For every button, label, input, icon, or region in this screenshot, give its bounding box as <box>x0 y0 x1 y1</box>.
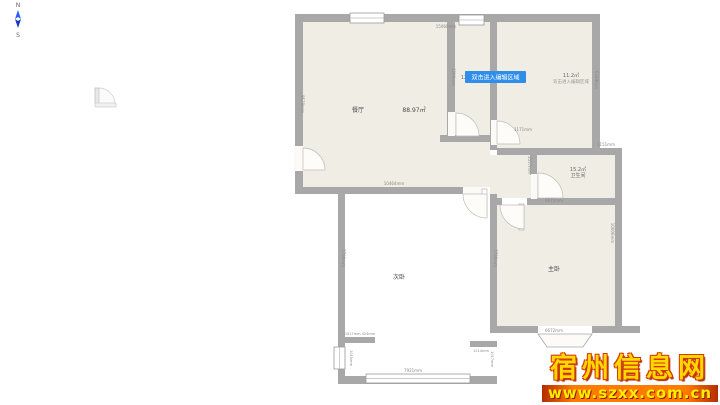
room-dining-floor[interactable] <box>303 22 447 187</box>
dim-left-window: 1010mm <box>349 350 353 366</box>
dim-stub-right: 1214mm <box>473 349 489 353</box>
floorplan-drawing: 15060mm 9570mm 10464mm 1290mm 6349mm 115… <box>0 0 720 405</box>
wall-top[interactable] <box>295 14 600 22</box>
room-top-right-area: 11.2㎡ <box>563 72 579 79</box>
dim-bath-bottom: 6672mm <box>545 198 563 203</box>
room-bathroom-area: 15.2㎡ <box>570 166 586 173</box>
dim-top-width: 15060mm <box>436 24 457 29</box>
edit-tooltip[interactable]: 双击进入编辑区域 <box>465 71 526 83</box>
dim-living-left: 9570mm <box>300 95 305 113</box>
room-dining-floor-ext[interactable] <box>447 142 490 187</box>
room-second-floor[interactable] <box>345 194 490 376</box>
room-second-name[interactable]: 次卧 <box>393 273 405 281</box>
room-top-right-placeholder[interactable]: 双击进入编辑区域 <box>553 78 589 85</box>
room-dining-name[interactable]: 餐厅 <box>352 106 364 114</box>
dim-master-right: 10006mm <box>610 223 615 244</box>
room-master-name[interactable]: 主卧 <box>548 265 560 273</box>
wall-living-bottom[interactable] <box>295 187 463 194</box>
dim-top-right-height: 6349mm <box>594 71 599 89</box>
wall-bathroom-bottom-b[interactable] <box>527 198 622 205</box>
dim-second-left: 7700mm <box>341 249 346 267</box>
wall-stub-left[interactable] <box>345 337 375 343</box>
watermark-site-url: www.szxx.com.cn <box>542 385 718 402</box>
room-dining-area: 88.97㎡ <box>402 106 425 114</box>
watermark-site-name: 宿州信息网 <box>542 354 718 384</box>
dim-stub-left: 1017mm 424mm <box>345 332 376 336</box>
dim-bath-left: 3557mm <box>527 156 532 174</box>
room-bathroom-name[interactable]: 卫生间 <box>570 172 585 179</box>
floorplan-canvas: N S <box>0 0 720 405</box>
dim-step-width: 1151mm <box>597 142 615 147</box>
dim-bath-top: 1171mm <box>514 127 532 132</box>
dim-living-bottom: 10464mm <box>384 181 405 186</box>
edit-tooltip-text[interactable]: 双击进入编辑区域 <box>471 74 519 82</box>
dim-corridor-wall: 1290mm <box>451 68 456 86</box>
door-icon[interactable] <box>95 88 116 107</box>
wall-mid-b[interactable] <box>497 148 622 155</box>
dim-second-bottom: 7921mm <box>404 368 422 373</box>
room-hall-floor[interactable] <box>490 155 530 198</box>
wall-stub-right[interactable] <box>470 341 497 347</box>
dim-second-right: 7700mm <box>493 249 498 267</box>
dim-stub-right-v: 1017mm <box>490 351 494 367</box>
wall-right-lower[interactable] <box>615 155 622 333</box>
dim-master-bottom: 6672mm <box>545 328 563 333</box>
watermark: 宿州信息网 www.szxx.com.cn <box>542 354 718 402</box>
